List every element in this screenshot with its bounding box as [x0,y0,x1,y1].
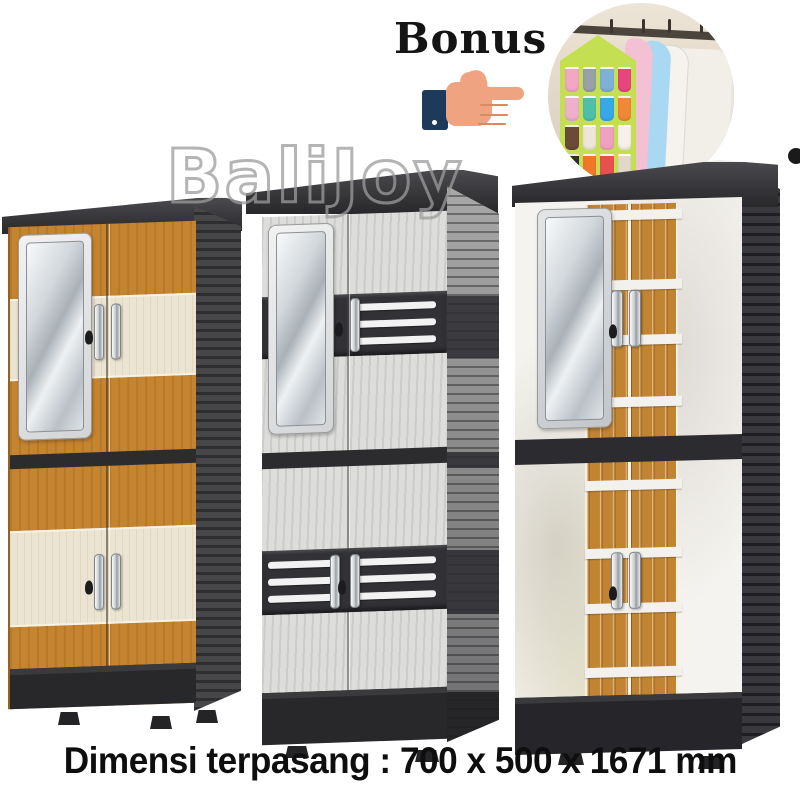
door-handle [629,552,641,609]
mirror-glass [276,231,326,427]
door-handle [111,303,121,359]
vent-stripe [356,590,436,600]
mirror-glass [545,216,604,422]
hanger-hook [642,19,645,33]
vent-stripe [356,318,436,328]
pocket-item [583,67,597,92]
pocket-item [600,96,614,121]
door-handle [350,554,360,608]
pocket-item [583,96,597,121]
hand-index-finger [476,87,524,100]
door-gap-highlight [349,214,350,742]
vent-stripe [356,556,436,566]
pocket-item [618,96,632,121]
cabinet-front [515,197,742,755]
cabinet-side-panel [194,206,241,711]
pocket-item [600,125,614,150]
door-mirror [18,232,92,441]
section-divider [10,449,196,469]
cabinet-front [8,221,196,710]
pocket-item [600,67,614,92]
vent-stripe [356,335,436,345]
finger-crease [478,123,506,125]
keyhole [609,586,617,600]
wardrobe-oak [0,196,262,756]
side-base [447,692,499,742]
door-mirror [537,207,612,429]
cabinet-foot [150,716,172,729]
vent-stripe [356,573,436,583]
mirror-glass [26,241,84,433]
finger-crease [480,114,508,116]
hanger-hook [700,19,703,33]
pocket-item [618,67,632,92]
wardrobe-gray [240,162,505,762]
door-handle [629,290,641,347]
side-divider [447,452,499,468]
keyhole [338,580,346,594]
side-band [447,550,499,614]
pointing-hand-icon [416,70,528,132]
hanger-hook [610,19,613,33]
bonus-label: Bonus [394,14,547,63]
door-handle [350,298,360,352]
sleeve-button [432,120,437,125]
door-mirror [268,223,334,435]
section-divider [262,447,447,469]
wardrobe-marble [498,160,790,760]
vent-stripe [356,301,436,311]
closet-rod [566,25,734,42]
keyhole [609,324,617,338]
pocket-item [565,96,579,121]
product-image-canvas: BaliJoy Bonus [0,0,800,800]
corner-dot [788,148,800,164]
cabinet-side-panel [742,166,780,744]
door-handle [611,290,623,347]
hanger-hook [668,19,671,33]
cabinet-base [10,663,196,710]
brand-watermark: BaliJoy [166,134,464,220]
pocket-item [583,125,597,150]
dimension-caption: Dimensi terpasang : 700 x 500 x 1671 mm [63,740,736,782]
cabinet-foot [58,712,80,725]
door-handle [111,553,121,609]
panel-separator [585,479,682,492]
door-handle [94,304,104,360]
cabinet-foot [196,710,218,723]
pocket-item [618,125,632,150]
keyhole [85,330,93,344]
section-divider [515,434,742,465]
pocket-item [565,67,579,92]
pocket-item [565,125,579,150]
cabinet-front [262,211,447,745]
door-handle [611,552,623,609]
cabinet-base [262,687,447,745]
keyhole [85,580,93,594]
door-handle [94,554,104,610]
side-band [447,296,499,358]
keyhole [335,322,343,336]
finger-crease [480,104,508,106]
panel-separator [585,666,682,679]
cabinet-side-panel [447,186,499,742]
caption-row: Dimensi terpasang : 700 x 500 x 1671 mm [0,740,800,782]
